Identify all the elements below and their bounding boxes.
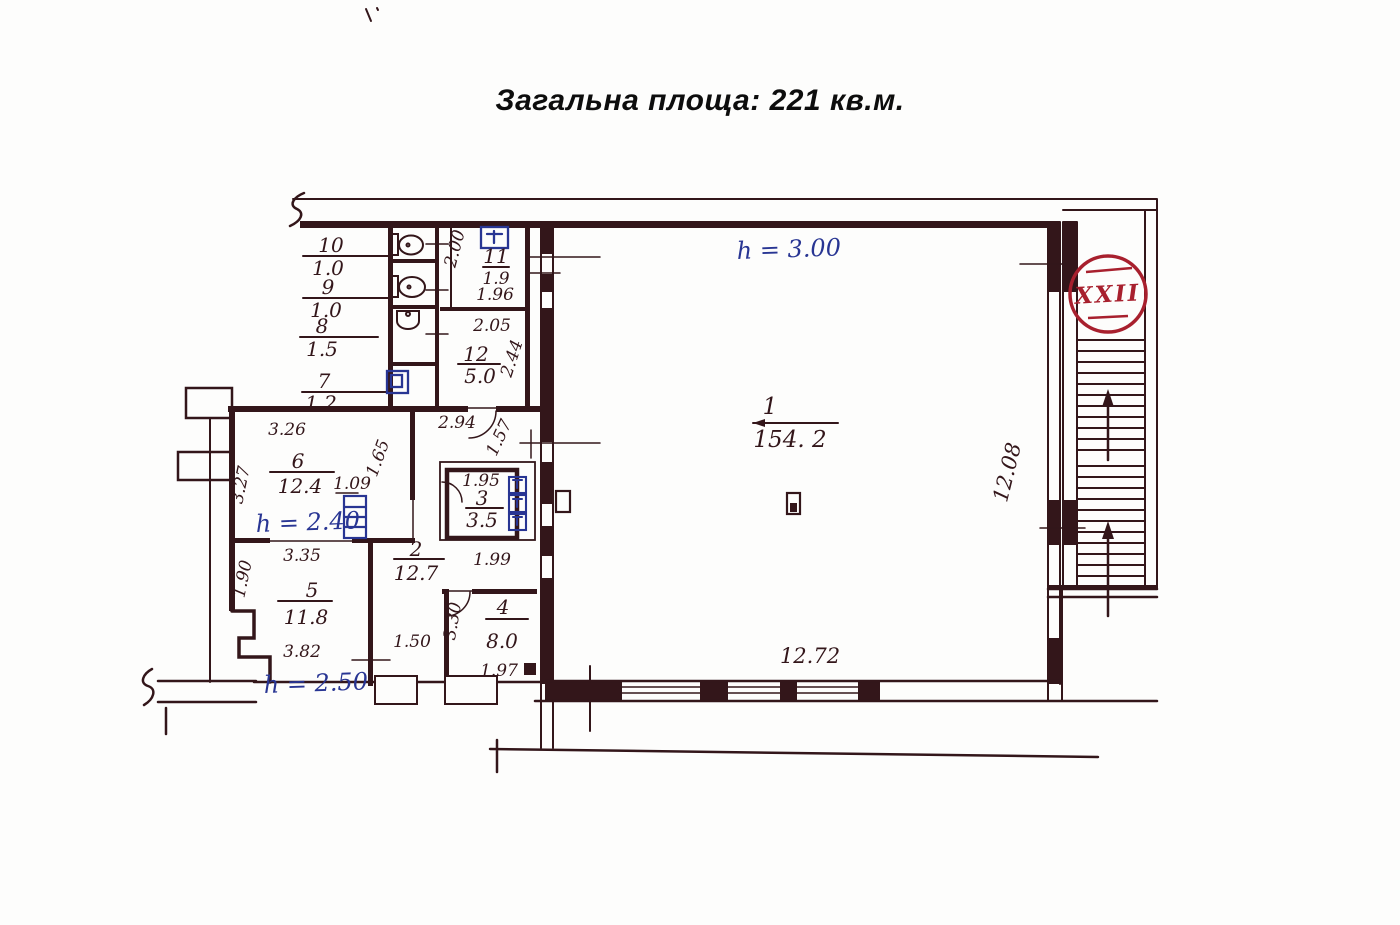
room-7-number: 7	[318, 369, 331, 393]
dim-room6-right: 1.65	[362, 437, 394, 479]
appliance-mark	[513, 517, 522, 525]
room5-height-note: h = 2.50	[263, 667, 368, 699]
stamp-rule-bottom	[1088, 316, 1128, 318]
room-3-area: 3.5	[466, 508, 498, 532]
hall-wall-pilaster	[556, 491, 570, 512]
room-1-area: 154. 2	[753, 427, 826, 453]
room-4-number: 4	[496, 595, 510, 619]
dim-room11-width: 1.96	[476, 285, 514, 305]
room-12-area: 5.0	[464, 364, 496, 388]
sink-basin	[397, 311, 419, 329]
dim-room6-top: 3.26	[268, 420, 306, 440]
exterior-pilaster-lower	[178, 452, 232, 480]
dim-room6-door: 1.09	[333, 474, 371, 494]
sink-drain	[406, 312, 410, 316]
room-1-number: 1	[763, 394, 778, 420]
entrance-threshold-left	[375, 676, 417, 704]
appliance-mark	[513, 480, 522, 488]
stamp-label: XXII	[1072, 279, 1141, 309]
dim-room4-left: 3.30	[440, 601, 466, 642]
room-9-number: 9	[322, 275, 335, 299]
dim-room4-bottom: 1.97	[480, 661, 518, 681]
room-10-number: 10	[318, 233, 344, 257]
toilet-dot	[407, 244, 410, 247]
room-2-area: 12.7	[394, 561, 439, 585]
room-7-area: 1.2	[305, 391, 337, 415]
stray-pen-mark	[366, 8, 378, 21]
toilet-room10	[389, 234, 423, 255]
room-4-area: 8.0	[486, 629, 518, 653]
dim-room11-left: 2.00	[440, 228, 469, 271]
room-6-number: 6	[292, 449, 305, 473]
room-6-area: 12.4	[278, 474, 323, 498]
stamp-rule-top	[1086, 268, 1132, 272]
floorplan-drawing: XXII h = 3.00 h = 2.40 h = 2.50 1 154. 2…	[0, 0, 1400, 925]
room-5-number: 5	[306, 578, 319, 602]
wall-break-squiggle-bottom	[143, 669, 153, 705]
dim-room12-right: 2.44	[497, 337, 528, 380]
dim-corridor-bottom: 1.50	[393, 632, 431, 652]
toilet-bowl	[399, 236, 423, 255]
plan-labels: 1 154. 2 12.72 12.08 2 12.7 2.94 1.57 1.…	[227, 228, 1026, 681]
dim-room5-bottom: 3.82	[283, 642, 321, 662]
room-12-number: 12	[463, 342, 488, 366]
sink-room8	[397, 311, 419, 329]
toilet-bowl	[399, 277, 425, 297]
floor-stamp-text: XXII	[1072, 279, 1141, 309]
room6-height-note: h = 2.40	[255, 506, 360, 538]
room-8-number: 8	[316, 314, 329, 338]
appliances-room3	[509, 477, 526, 530]
room-8-area: 1.5	[306, 337, 338, 361]
dim-hall-width: 12.72	[780, 644, 840, 668]
exterior-pilaster-upper	[186, 388, 232, 418]
stair-treads	[1077, 340, 1145, 576]
scanned-floorplan-page: Загальна площа: 221 кв.м.	[0, 0, 1400, 925]
toilet-dot	[408, 286, 411, 289]
room-3-number: 3	[476, 486, 489, 510]
hall-height-note: h = 3.00	[736, 233, 841, 265]
dim-room3-door: 1.99	[473, 550, 511, 570]
dim-hall-depth: 12.08	[988, 440, 1026, 504]
toilet-room9	[389, 276, 425, 297]
dim-corridor-top: 2.94	[437, 413, 476, 433]
room-5-area: 11.8	[284, 605, 329, 629]
dim-corridor-diag: 1.57	[482, 416, 516, 459]
appliance-mark	[513, 499, 522, 507]
dim-room5-top: 3.35	[283, 546, 321, 566]
room-2-number: 2	[409, 537, 423, 561]
dim-room12-top: 2.05	[472, 316, 511, 336]
room-11-number: 11	[483, 244, 508, 268]
basin-tap	[487, 231, 502, 243]
